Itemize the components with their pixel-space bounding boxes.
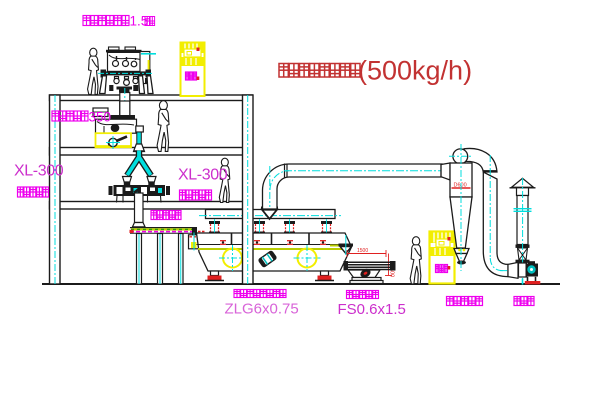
svg-text:(500kg/h): (500kg/h) (358, 56, 472, 86)
svg-text:D600: D600 (454, 183, 467, 189)
svg-text:ZLG6x0.75: ZLG6x0.75 (225, 301, 299, 318)
svg-text:XL-300: XL-300 (14, 163, 64, 180)
svg-text:350: 350 (89, 110, 112, 125)
svg-text:FS0.6x1.5: FS0.6x1.5 (338, 301, 406, 318)
svg-text:1500: 1500 (357, 248, 368, 254)
svg-text:XL-300: XL-300 (178, 167, 228, 184)
